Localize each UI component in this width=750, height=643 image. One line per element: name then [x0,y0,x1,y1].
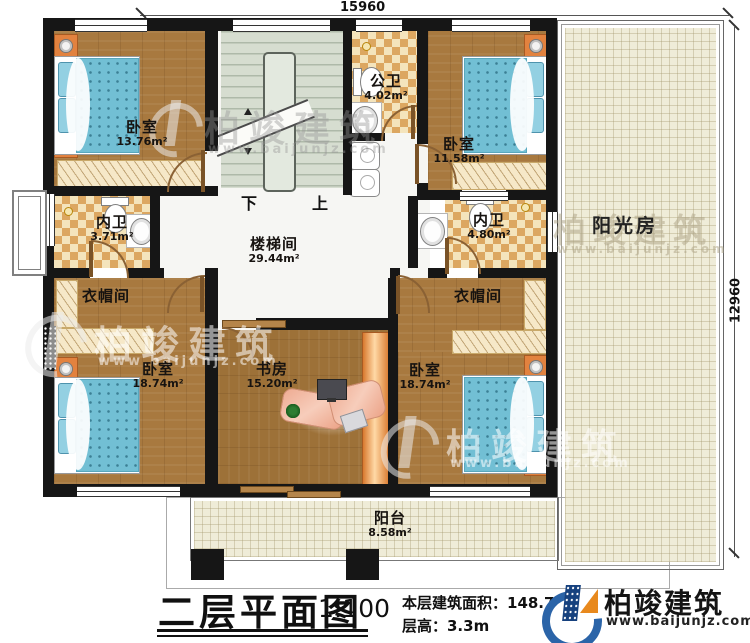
dimension-line-top [140,15,729,16]
dimension-width: 15960 [340,0,385,15]
door-leaf [89,241,93,277]
window [75,19,147,32]
stair-arrow-down-icon [244,148,252,155]
wall-interior [408,196,418,268]
balcony-pillar-right [346,549,379,580]
washing-machine [349,142,380,170]
sunroom [557,20,724,570]
window [356,19,402,32]
room-label-cloakroom-right: 衣帽间 [454,288,502,305]
dimension-height: 12960 [729,271,744,331]
blanket-fold [510,377,534,470]
wall-interior [128,268,164,278]
balcony-pillar-left [191,549,224,580]
floor-plan: 柏竣建筑 www.baijunjz.com 柏竣建筑 www.baijunjz.… [0,0,750,643]
bedroom-tr-closet [452,162,548,190]
wall-interior [478,268,557,278]
room-label-stairwell: 楼梯间29.44m² [248,236,299,266]
wall-right [546,18,557,497]
wall-interior [417,31,428,144]
blanket-fold [510,58,534,151]
wall-interior [150,196,160,278]
monitor-stand [327,398,336,402]
nightstand [524,34,548,58]
window [547,212,558,252]
floor-drain-icon [64,207,73,216]
bay-window [12,190,47,276]
sink [352,106,378,135]
room-label-bedroom-tl: 卧室13.76m² [116,119,167,149]
building-area-text: 本层建筑面积：148.7 [402,592,554,613]
wall-interior [506,190,547,200]
wall-interior [343,31,352,195]
stair-down-label: 下 [241,190,257,214]
wall-interior [205,318,218,487]
room-label-sunroom: 阳光房 [592,211,658,238]
room-label-balcony: 阳台8.58m² [368,510,411,540]
floor-drain-icon [521,203,530,212]
company-logo-icon [540,583,602,641]
door-leaf [396,276,400,314]
sunroom-floor [565,28,716,562]
room-label-bath-left: 内卫3.71m² [90,214,133,244]
door-leaf [415,144,419,184]
dimension-tick [135,7,146,18]
window [452,19,530,32]
blanket-fold [66,58,90,151]
door-leaf [222,320,286,328]
window [233,19,330,32]
door-leaf [411,105,415,139]
window [77,486,180,497]
room-label-cloakroom-left: 衣帽间 [82,288,130,305]
stair-arrow-up-icon [244,108,252,115]
door-leaf [201,150,205,192]
window [460,191,508,201]
wall-interior [43,268,90,278]
flue [43,326,56,370]
wall-interior [205,31,218,151]
sliding-door [240,486,294,493]
stair-up-label: 上 [312,190,328,214]
floor-height-text: 层高：3.3m [402,615,489,636]
cloakroom-left-closet-side [56,280,78,328]
title-underline2 [157,635,368,637]
door-leaf [200,276,204,312]
room-label-public-bath: 公卫4.02m² [364,73,407,103]
dimension-tick [722,7,733,18]
room-label-bedroom-bl: 卧室18.74m² [132,361,183,391]
sink [420,217,445,246]
room-label-bedroom-br: 卧室18.74m² [399,362,450,392]
blanket-fold [66,379,90,470]
wall-interior [417,190,462,200]
plan-scale: 1:100 [318,594,390,623]
room-label-study: 书房15.20m² [246,361,297,391]
window [430,486,530,497]
floor-drain-icon [362,42,371,51]
sliding-door [287,491,341,498]
wall-interior [205,268,218,318]
room-label-bath-right: 内卫4.80m² [467,212,510,242]
door-leaf [445,238,449,274]
cloakroom-left-closet [56,328,154,354]
title-underline [157,629,368,632]
room-label-bedroom-tr: 卧室11.58m² [433,136,484,166]
cloakroom-right-closet [452,330,548,354]
cloakroom-right-closet-side [524,280,546,330]
washing-machine [349,169,380,197]
company-website: www.baijunjz.com [606,614,750,629]
nightstand [54,34,78,58]
computer-monitor [317,379,347,400]
plant-icon [286,404,300,418]
